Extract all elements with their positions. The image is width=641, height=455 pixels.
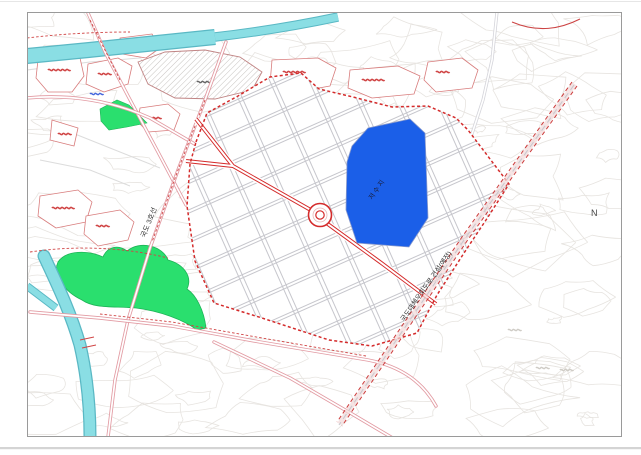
road-south-branch [214,342,396,440]
page-top-edge [0,1,641,2]
north-marker: N [591,208,598,218]
page-bottom-edge [0,447,641,449]
island-mark [197,81,211,82]
bridge-name-mark [90,93,104,94]
red-contour-line [512,19,580,29]
roundabout [309,204,332,227]
hatched-area [138,50,262,99]
plan-map: 저수지 국도 3호선 국도대체우회도로 건설(예정) N [0,0,641,455]
page: 저수지 국도 3호선 국도대체우회도로 건설(예정) N [0,0,641,455]
river [27,17,338,56]
